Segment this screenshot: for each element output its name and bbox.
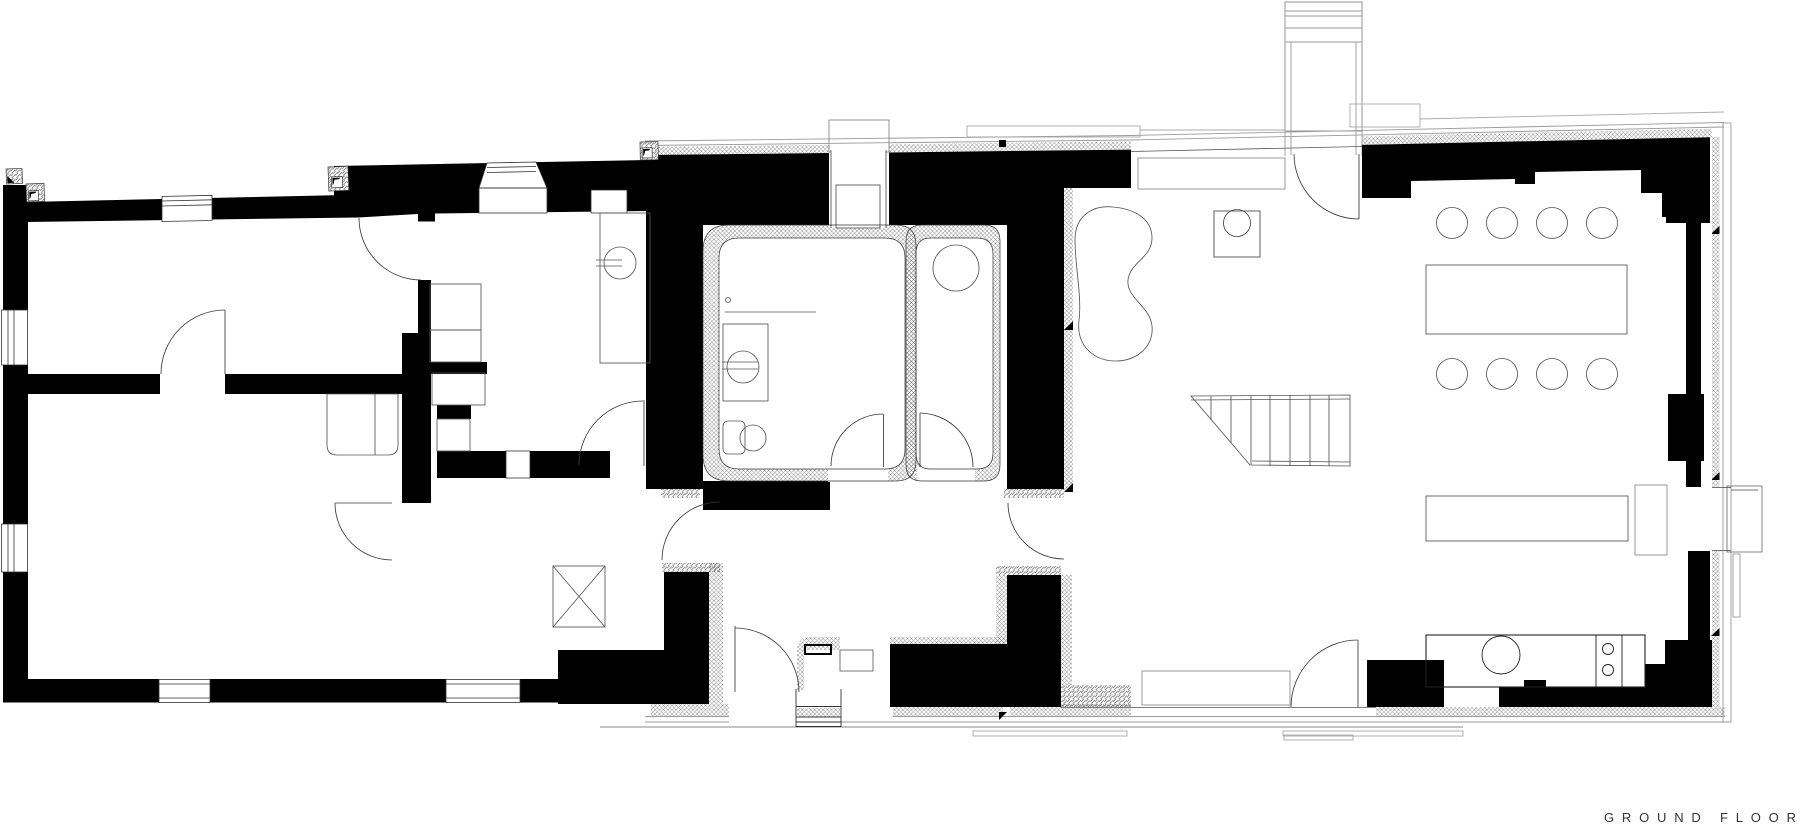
svg-text:GROUND FLOOR: GROUND FLOOR — [1604, 810, 1800, 825]
